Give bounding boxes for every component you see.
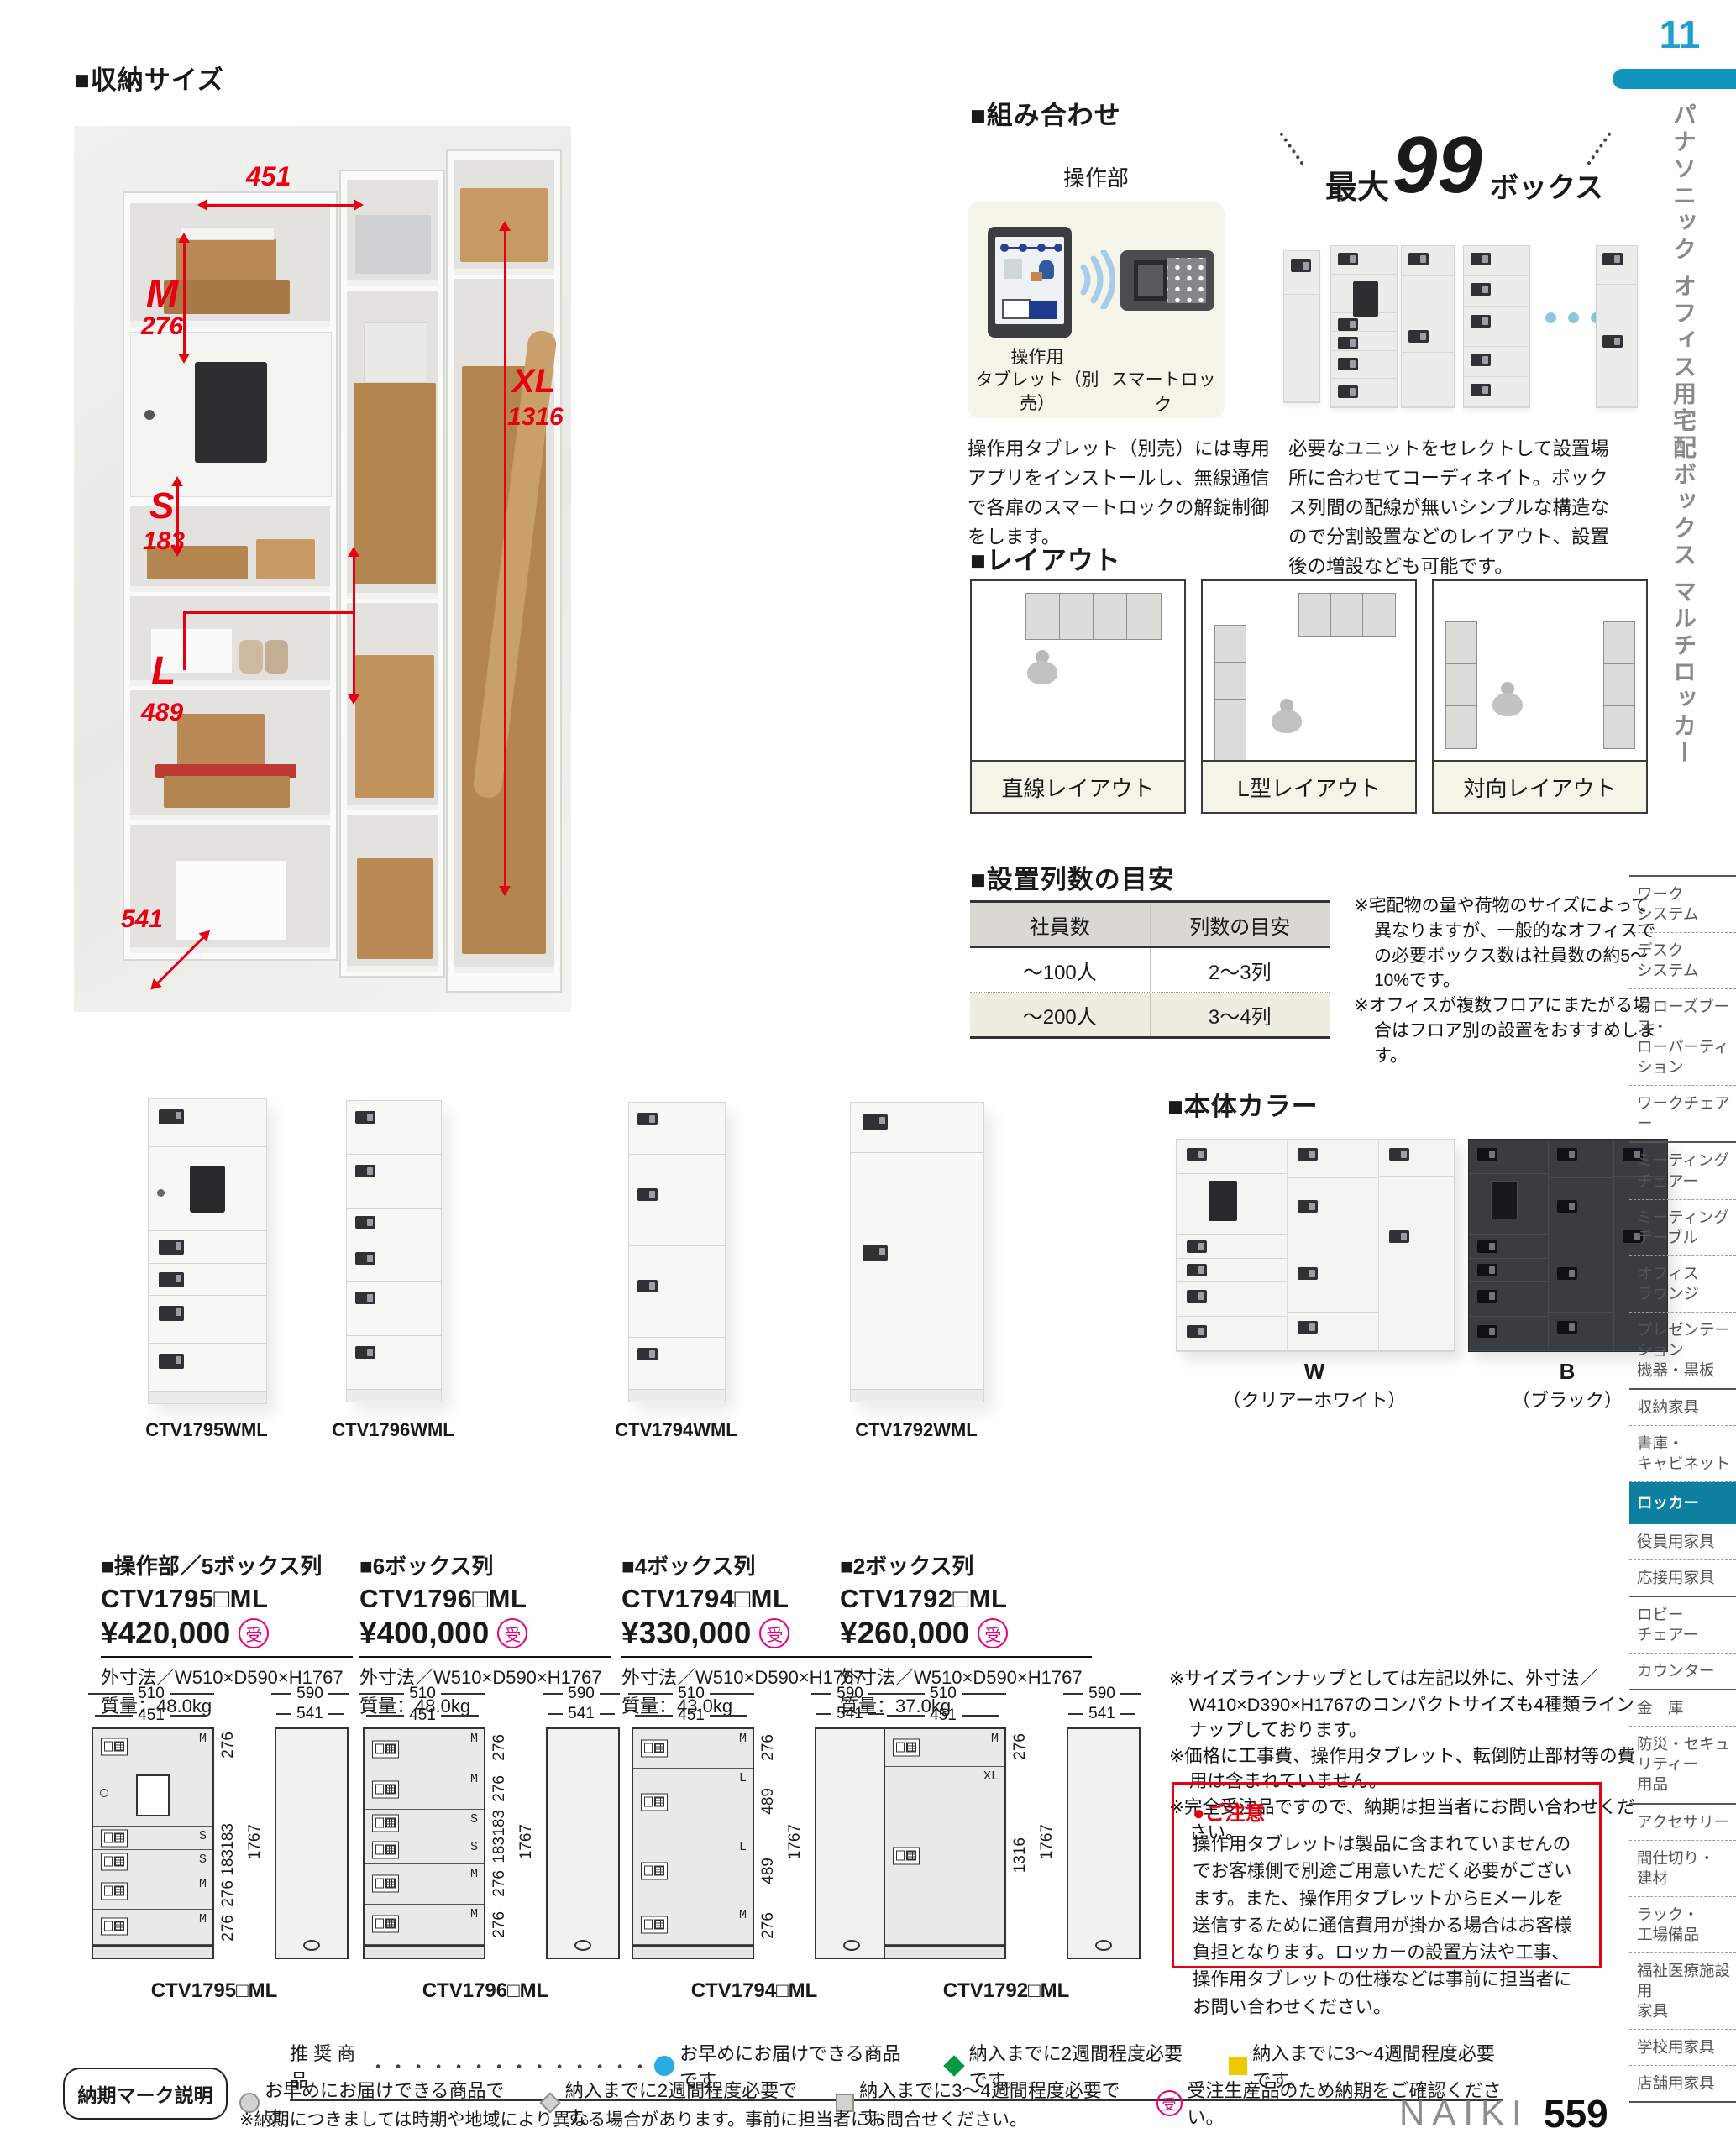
sidebar-item-safe[interactable]: 金 庫 xyxy=(1629,1690,1736,1727)
catalog-page: 11 パナソニック オフィス用宅配ボックス マルチロッカー ■収納サイズ xyxy=(0,0,1736,2149)
order-mark-icon: 受 xyxy=(978,1618,1008,1648)
spec-price: ¥400,000 xyxy=(359,1616,489,1651)
control-unit-label: 操作部 xyxy=(970,161,1222,192)
delivery-mark-square-yellow-icon xyxy=(1229,2057,1247,2075)
spec-model: CTV1794□ML xyxy=(621,1584,873,1614)
brand-logo: NAIKI xyxy=(1399,2093,1529,2133)
delivery-mark-diamond-green-icon xyxy=(943,2055,964,2076)
caution-title: ●ご注意 xyxy=(1193,1796,1581,1826)
category-sidebar: ワーク システム デスク システム クローズブース・ ローパーティション ワーク… xyxy=(1629,875,1736,2103)
spec-title: ■操作部／5ボックス列 xyxy=(101,1549,353,1580)
max-number: 99 xyxy=(1392,119,1482,212)
sidebar-item-storage-furniture[interactable]: 収納家具 xyxy=(1629,1390,1736,1426)
delivery-legend-note: ※納期につきましては時期や地域により異なる場合があります。事前に担当者にお問合せ… xyxy=(239,2106,1027,2131)
sidebar-item-cabinet[interactable]: 書庫・ キャビネット xyxy=(1629,1426,1736,1482)
sidebar-item-meeting-chair[interactable]: ミーティング チェアー xyxy=(1629,1143,1736,1199)
table-cell: ～200人 xyxy=(970,993,1151,1036)
dim-l-arrow xyxy=(353,551,355,700)
caution-text: 操作用タブレットは製品に含まれていませんのでお客様側で別途ご用意いただく必要がご… xyxy=(1193,1831,1581,2021)
max-prefix: 最大 xyxy=(1325,161,1389,207)
table-header-cell: 列数の目安 xyxy=(1151,903,1330,946)
technical-drawing-ctv1794: 510 451 M L L M 276 489 489 276 1767 590… xyxy=(628,1684,893,2013)
dim-s-label: S xyxy=(149,485,174,527)
dim-width: 451 xyxy=(246,161,291,192)
storage-size-heading: ■収納サイズ xyxy=(74,59,224,97)
sidebar-item-disaster-security[interactable]: 防災・セキュリティー 用品 xyxy=(1629,1727,1736,1804)
person-icon xyxy=(1268,699,1305,734)
delivery-legend-box: 納期マーク説明 xyxy=(63,2068,228,2120)
rows-guide-table: 社員数 列数の目安 ～100人 2～3列 ～200人 3～4列 xyxy=(970,900,1330,1039)
table-cell: 3～4列 xyxy=(1151,993,1330,1036)
product-photo-ctv1796 xyxy=(346,1100,442,1402)
combination-right-text: 必要なユニットをセレクトして設置場所に合わせてコーディネイト。ボックス列間の配線… xyxy=(1288,435,1613,581)
dim-xl-value: 1316 xyxy=(507,403,564,432)
dim-l-value: 489 xyxy=(141,699,183,727)
drawing-model-label: CTV1794□ML xyxy=(628,1979,880,2003)
sidebar-item-counter[interactable]: カウンター xyxy=(1629,1654,1736,1690)
catalog-page-code: 559 xyxy=(1544,2091,1608,2136)
product-photo-label: CTV1794WML xyxy=(575,1419,777,1441)
sidebar-item-shop[interactable]: 店舗用家具 xyxy=(1629,2066,1736,2103)
product-photo-label: CTV1796WML xyxy=(292,1419,494,1441)
drawing-dim: 451 xyxy=(133,1706,170,1725)
sidebar-item-accessory[interactable]: アクセサリー xyxy=(1629,1805,1736,1841)
spec-model: CTV1796□ML xyxy=(359,1584,611,1614)
product-photo-ctv1792 xyxy=(850,1102,984,1402)
dim-l-line xyxy=(183,611,353,614)
layout-heading: ■レイアウト xyxy=(970,539,1121,577)
spec-model: CTV1792□ML xyxy=(840,1584,1092,1614)
order-mark-icon: 受 xyxy=(239,1618,269,1648)
wireless-icon xyxy=(1078,250,1115,309)
sidebar-item-desk-system[interactable]: デスク システム xyxy=(1629,933,1736,989)
technical-drawing-ctv1792: 510 451 M XL 276 1316 1767 590 541 CTV17… xyxy=(880,1684,1145,2013)
ellipsis-dots xyxy=(1545,312,1602,323)
product-photo-ctv1795 xyxy=(148,1098,267,1404)
page-tab-bar xyxy=(1613,69,1736,89)
dim-width-arrow xyxy=(202,204,359,207)
combination-left-text: 操作用タブレット（別売）には専用アプリをインストールし、無線通信で各扉のスマート… xyxy=(968,435,1280,553)
order-mark-icon: 受 xyxy=(497,1618,527,1648)
dim-s-arrow xyxy=(176,480,179,553)
sidebar-item-school[interactable]: 学校用家具 xyxy=(1629,2030,1736,2066)
dim-xl-arrow xyxy=(504,225,506,892)
spec-model: CTV1795□ML xyxy=(101,1584,353,1614)
person-icon xyxy=(1489,682,1526,717)
spec-title: ■2ボックス列 xyxy=(840,1549,1092,1580)
rows-guide-heading: ■設置列数の目安 xyxy=(970,858,1175,896)
tablet-label: 操作用 タブレット（別売） xyxy=(974,346,1100,415)
spec-price: ¥330,000 xyxy=(621,1616,751,1651)
drawing-dim: 590 xyxy=(291,1685,328,1703)
dim-depth-value: 541 xyxy=(121,905,163,934)
page-number: 11 xyxy=(1633,12,1727,57)
technical-drawing-ctv1796: 510 451 M M S S M M 276 276 183 183 276 … xyxy=(359,1684,624,2013)
slash-decoration xyxy=(1587,132,1612,165)
sidebar-item-work-chair[interactable]: ワークチェアー xyxy=(1629,1086,1736,1143)
sidebar-item-partition[interactable]: 間仕切り・ 建材 xyxy=(1629,1841,1736,1897)
sidebar-item-presentation[interactable]: プレゼンテーション 機器・黒板 xyxy=(1629,1313,1736,1390)
note-line: ※宅配物の量や荷物のサイズによって異なりますが、一般的なオフィスでの必要ボックス… xyxy=(1354,894,1666,993)
combination-heading: ■組み合わせ xyxy=(970,94,1121,132)
layout-caption: 直線レイアウト xyxy=(972,760,1184,812)
note-line: ※サイズラインナップとしては左記以外に、外寸法／W410×D390×H1767の… xyxy=(1169,1666,1639,1743)
spec-price: ¥420,000 xyxy=(101,1616,230,1651)
sidebar-item-rack-factory[interactable]: ラック・ 工場備品 xyxy=(1629,1897,1736,1953)
table-cell: 2～3列 xyxy=(1151,948,1330,992)
body-color-heading: ■本体カラー xyxy=(1167,1085,1319,1123)
sidebar-item-lobby-chair[interactable]: ロビー チェアー xyxy=(1629,1597,1736,1654)
person-icon xyxy=(1024,650,1061,685)
rows-guide-notes: ※宅配物の量や荷物のサイズによって異なりますが、一般的なオフィスでの必要ボックス… xyxy=(1354,894,1666,1069)
layout-caption: 対向レイアウト xyxy=(1434,760,1646,812)
drawing-dim: 541 xyxy=(291,1705,328,1723)
order-mark-icon: 受 xyxy=(1156,2090,1183,2116)
smartlock-icon xyxy=(1120,250,1214,311)
slash-decoration xyxy=(1279,132,1304,165)
dim-l-label: L xyxy=(151,648,176,694)
max-suffix: ボックス xyxy=(1490,165,1603,206)
sidebar-item-welfare-medical[interactable]: 福祉医療施設用 家具 xyxy=(1629,1953,1736,2030)
sidebar-item-work-system[interactable]: ワーク システム xyxy=(1629,877,1736,933)
layout-card-straight: 直線レイアウト xyxy=(970,579,1186,814)
drawing-total-height: 1767 xyxy=(246,1824,265,1859)
drawing-model-label: CTV1796□ML xyxy=(359,1979,611,2003)
color-name: （クリアーホワイト） xyxy=(1176,1386,1453,1413)
spec-title: ■6ボックス列 xyxy=(359,1549,611,1580)
product-photo-ctv1794 xyxy=(628,1102,726,1402)
sidebar-item-reception[interactable]: 応接用家具 xyxy=(1629,1560,1736,1597)
technical-drawing-ctv1795: 510 451 M S S M M 276 183 183 276 276 17… xyxy=(88,1684,353,2013)
color-code: W xyxy=(1176,1359,1453,1385)
drawing-model-label: CTV1792□ML xyxy=(880,1979,1132,2003)
dim-l-line xyxy=(183,611,186,670)
layout-card-facing: 対向レイアウト xyxy=(1432,579,1648,814)
order-mark-icon: 受 xyxy=(759,1618,789,1648)
dim-m-label: M xyxy=(146,270,178,316)
drawing-model-label: CTV1795□ML xyxy=(88,1979,340,2003)
sidebar-item-meeting-table[interactable]: ミーティング テーブル xyxy=(1629,1200,1736,1256)
dim-m-arrow xyxy=(183,237,186,359)
unit-combination-illustration xyxy=(1283,225,1636,427)
storage-size-photo: 451 M 276 S 183 L 489 XL 1316 541 xyxy=(74,126,571,1012)
dim-m-value: 276 xyxy=(141,312,183,341)
sidebar-item-executive[interactable]: 役員用家具 xyxy=(1629,1524,1736,1560)
caution-box: ●ご注意 操作用タブレットは製品に含まれていませんのでお客様側で別途ご用意いただ… xyxy=(1172,1782,1602,1968)
delivery-mark-circle-blue-icon xyxy=(654,2056,674,2076)
table-cell: ～100人 xyxy=(970,948,1151,992)
sidebar-item-locker[interactable]: ロッカー xyxy=(1629,1482,1736,1524)
spec-title: ■4ボックス列 xyxy=(621,1549,873,1580)
spec-price: ¥260,000 xyxy=(840,1616,969,1651)
max-boxes-banner: 最大 99 ボックス xyxy=(1290,126,1609,218)
layout-card-lshape: L型レイアウト xyxy=(1201,579,1417,814)
tablet-icon xyxy=(988,227,1072,338)
table-header-cell: 社員数 xyxy=(970,903,1151,946)
control-unit-panel: 操作用 タブレット（別売） スマートロック xyxy=(968,202,1225,418)
drawing-dim: 510 xyxy=(133,1685,170,1703)
product-photo-label: CTV1795WML xyxy=(106,1419,307,1441)
smartlock-label: スマートロック xyxy=(1102,366,1225,417)
sidebar-item-closed-booth[interactable]: クローズブース・ ローパーティション xyxy=(1629,989,1736,1086)
product-photo-label: CTV1792WML xyxy=(816,1419,1017,1441)
note-line: ※オフィスが複数フロアにまたがる場合はフロア別の設置をおすすめします。 xyxy=(1354,993,1666,1068)
sidebar-item-office-lounge[interactable]: オフィス ラウンジ xyxy=(1629,1256,1736,1313)
layout-caption: L型レイアウト xyxy=(1203,760,1415,812)
dim-xl-label: XL xyxy=(512,363,555,401)
body-color-white-photo xyxy=(1176,1139,1455,1352)
page-side-title: パナソニック オフィス用宅配ボックス マルチロッカー xyxy=(1666,102,1700,768)
